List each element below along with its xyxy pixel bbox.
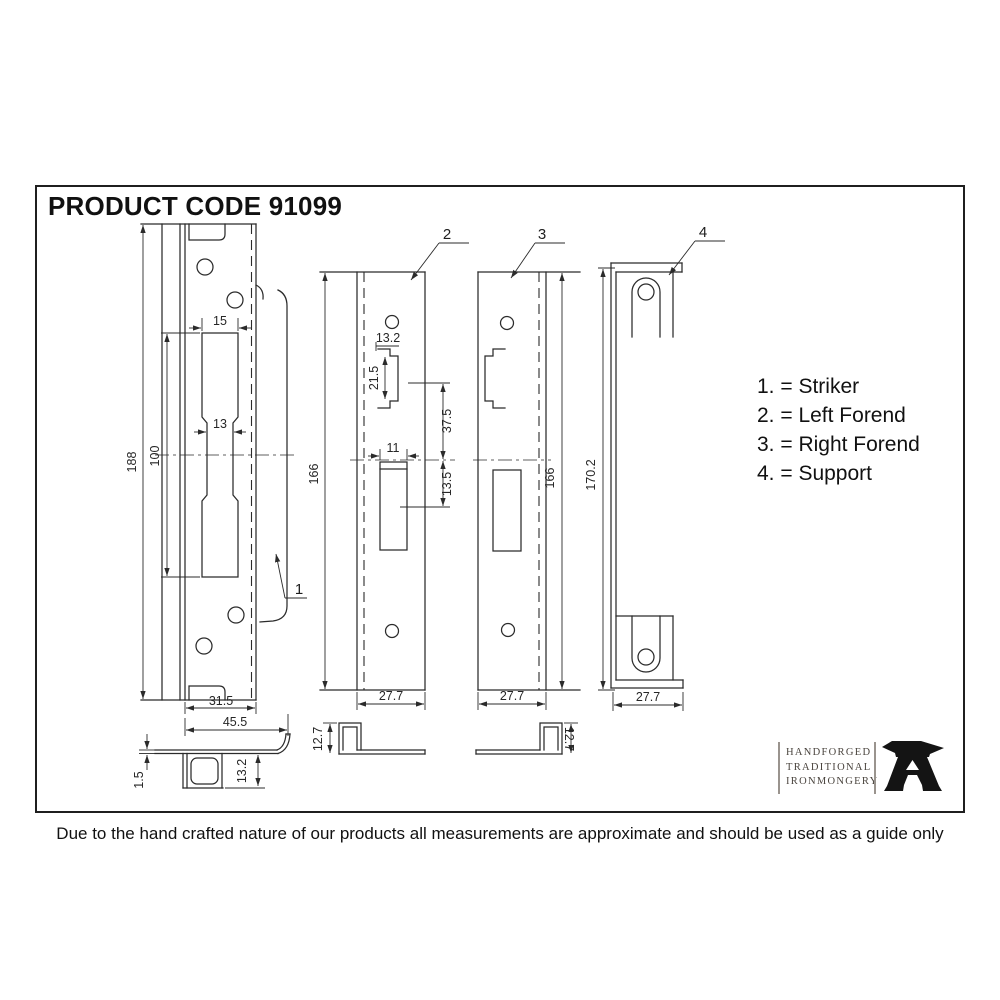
logo-line-ironmongery: IRONMONGERY [786, 775, 878, 790]
dim-label-lf-width: 27.7 [379, 689, 403, 703]
left-forend-side-view: 12.7 [311, 723, 425, 754]
dim-label-support-width: 27.7 [636, 690, 660, 704]
callout-left-forend: 2 [443, 226, 451, 243]
legend-item-support: 4. = Support [757, 459, 920, 488]
legend-item-striker: 1. = Striker [757, 372, 920, 401]
dim-label-lf-latch-to-centre: 37.5 [440, 409, 454, 433]
callout-right-forend: 3 [538, 226, 546, 243]
parts-legend: 1. = Striker 2. = Left Forend 3. = Right… [757, 372, 920, 488]
dim-label-rf-height: 166 [543, 468, 557, 489]
logo-line-handforged: HANDFORGED [786, 746, 878, 761]
logo-divider-left [778, 742, 780, 794]
legend-item-left-forend: 2. = Left Forend [757, 401, 920, 430]
dim-label-lf-height: 166 [307, 464, 321, 485]
dim-label-support-height: 170.2 [584, 459, 598, 490]
striker-drawing: 188 100 15 13 31.5 45.5 [125, 224, 307, 789]
striker-side-view: 1.5 13.2 [132, 734, 290, 789]
technical-drawing: 188 100 15 13 31.5 45.5 [35, 178, 965, 823]
left-forend-drawing: 13.2 21.5 37.5 11 13.5 166 27.7 [307, 226, 469, 754]
dim-label-rf-width: 27.7 [500, 689, 524, 703]
dim-label-lf-return-depth: 12.7 [311, 727, 325, 751]
dim-label-lf-centre-to-slot: 13.5 [440, 472, 454, 496]
callout-striker: 1 [295, 581, 303, 598]
dim-label-striker-total-width: 45.5 [223, 715, 247, 729]
dim-label-striker-slot-width: 13 [213, 417, 227, 431]
dim-label-lf-slot-width: 11 [387, 441, 400, 455]
anvil-icon [881, 738, 945, 794]
brand-logo: HANDFORGED TRADITIONAL IRONMONGERY [770, 735, 950, 797]
dim-label-striker-fold-width: 31.5 [209, 694, 233, 708]
product-drawing-page: PRODUCT CODE 91099 [0, 0, 1000, 1000]
dim-label-lf-latch-width: 13.2 [376, 331, 400, 345]
logo-wordmark: HANDFORGED TRADITIONAL IRONMONGERY [786, 746, 878, 790]
right-forend-side-view: 12.7 [476, 723, 578, 754]
dim-label-rf-return-depth: 12.7 [562, 727, 576, 751]
support-drawing: 170.2 27.7 [584, 224, 725, 711]
dim-label-striker-lip-depth: 13.2 [235, 759, 249, 783]
logo-line-traditional: TRADITIONAL [786, 761, 878, 776]
dim-label-striker-slot-height: 100 [148, 446, 162, 467]
dim-label-striker-thickness: 1.5 [132, 771, 146, 788]
dim-label-lf-latch-height: 21.5 [367, 366, 381, 390]
callout-support: 4 [699, 224, 707, 241]
logo-divider-right [874, 742, 876, 794]
dim-label-striker-slot-top-width: 15 [213, 314, 227, 328]
legend-item-right-forend: 3. = Right Forend [757, 430, 920, 459]
right-forend-drawing: 166 27.7 3 12.7 [473, 226, 580, 754]
disclaimer-text: Due to the hand crafted nature of our pr… [0, 824, 1000, 844]
dim-label-striker-height: 188 [125, 452, 139, 473]
